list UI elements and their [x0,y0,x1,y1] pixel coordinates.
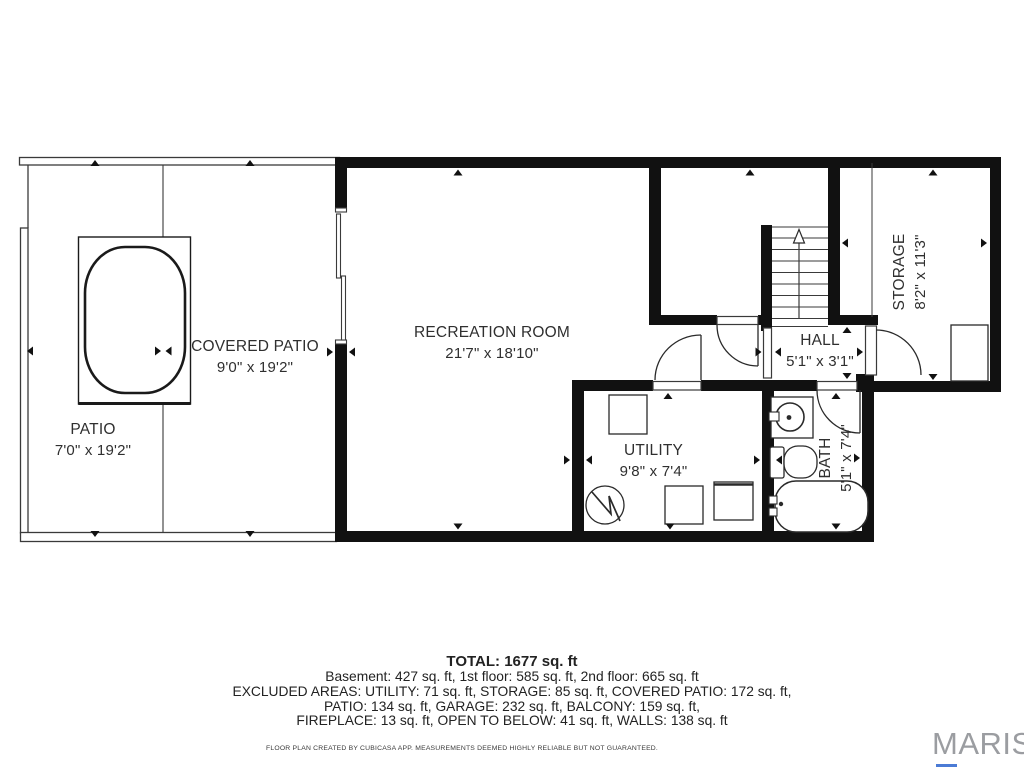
room-dims: 9'8" x 7'4" [591,461,716,482]
room-name: COVERED PATIO [165,336,345,357]
room-label-storage: STORAGE 8'2" x 11'3" [889,197,933,347]
appliance-icon [609,395,647,434]
maris-logo-accent [936,764,957,767]
room-label-utility: UTILITY 9'8" x 7'4" [591,440,716,482]
room-dims: 21'7" x 18'10" [392,343,592,364]
sliding-door [336,208,347,344]
room-name: PATIO [23,419,163,440]
room-dims: 8'2" x 11'3" [910,197,931,347]
room-label-bath: BATH 5'1" x 7'4" [815,399,857,517]
sink-icon [769,397,813,438]
room-name: UTILITY [591,440,716,461]
hot-tub-icon [79,237,191,404]
summary-excluded-3: FIREPLACE: 13 sq. ft, OPEN TO BELOW: 41 … [0,714,1024,729]
disclaimer-text: FLOOR PLAN CREATED BY CUBICASA APP. MEAS… [0,745,924,752]
room-dims: 5'1" x 7'4" [836,399,857,517]
water-heater-icon [586,486,624,524]
storage-unit-icon [951,325,988,381]
summary-total: TOTAL: 1677 sq. ft [0,653,1024,670]
room-dims: 7'0" x 19'2" [23,440,163,461]
room-label-patio: PATIO 7'0" x 19'2" [23,419,163,461]
toilet-icon [770,446,817,478]
room-dims: 9'0" x 19'2" [165,357,345,378]
maris-logo: MARIS [932,726,1024,762]
summary-excluded-1: EXCLUDED AREAS: UTILITY: 71 sq. ft, STOR… [0,685,1024,700]
summary-excluded-2: PATIO: 134 sq. ft, GARAGE: 232 sq. ft, B… [0,700,1024,715]
dryer-icon [714,482,753,520]
area-summary: TOTAL: 1677 sq. ft Basement: 427 sq. ft,… [0,653,1024,729]
summary-floors: Basement: 427 sq. ft, 1st floor: 585 sq.… [0,670,1024,685]
room-dims: 5'1" x 3'1" [768,351,872,372]
stairs-up-icon [772,227,828,327]
room-name: HALL [768,330,872,351]
floor-plan-canvas [0,0,1024,630]
room-label-hall: HALL 5'1" x 3'1" [768,330,872,372]
room-name: RECREATION ROOM [392,322,592,343]
room-label-recreation: RECREATION ROOM 21'7" x 18'10" [392,322,592,364]
room-label-covered-patio: COVERED PATIO 9'0" x 19'2" [165,336,345,378]
room-name: STORAGE [889,197,910,347]
washer-icon [665,486,703,524]
room-name: BATH [815,399,836,517]
